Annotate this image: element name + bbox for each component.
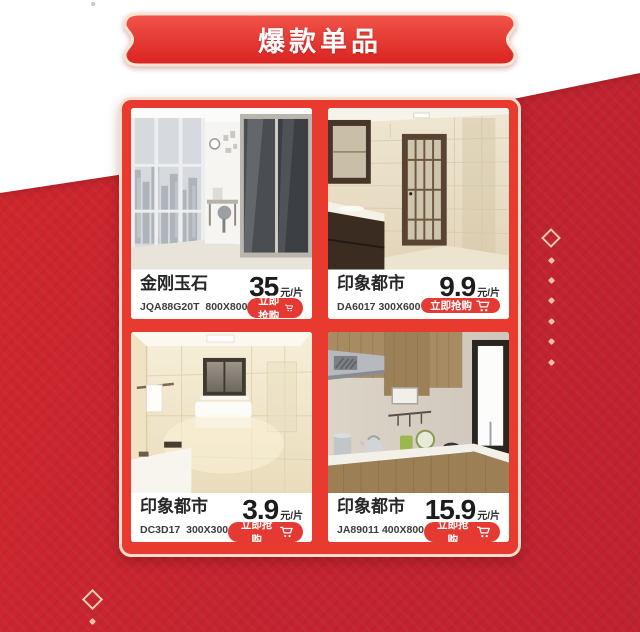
cart-icon	[477, 526, 491, 538]
product-name: 印象都市	[140, 498, 228, 516]
product-info-1: 金刚玉石 JQA88G20T 800X800 35 元/片 立即抢购	[131, 270, 312, 319]
product-price-line: 9.9 元/片	[439, 275, 500, 299]
product-info-2: 印象都市 DA6017 300X600 9.9 元/片 立即抢购	[328, 270, 509, 319]
product-photo-3	[131, 332, 312, 494]
product-price-unit: 元/片	[477, 513, 500, 522]
product-card-3[interactable]: 印象都市 DC3D17 300X300 3.9 元/片 立即抢购	[131, 332, 312, 543]
buy-now-label: 立即抢购	[433, 517, 473, 542]
diamond-dot	[548, 257, 555, 264]
product-price-unit: 元/片	[477, 290, 500, 299]
bathroom-door-photo	[328, 108, 509, 270]
kitchen-photo	[328, 332, 509, 494]
banner-title: 爆款单品	[123, 12, 517, 67]
diamond-dot	[89, 618, 96, 625]
diamond-dot	[548, 297, 555, 304]
product-sku: DA6017 300X600	[337, 301, 420, 313]
diamond-outline-ornament-bottom-left	[82, 589, 103, 610]
product-sku: JA89011 400X800	[337, 524, 424, 536]
product-info-4: 印象都市 JA89011 400X800 15.9 元/片 立即抢购	[328, 493, 509, 542]
gray-dot-decoration	[91, 2, 95, 6]
buy-now-button[interactable]: 立即抢购	[424, 522, 500, 542]
product-sku: JQA88G20T 800X800	[140, 301, 247, 313]
product-name: 金刚玉石	[140, 275, 247, 293]
product-photo-1	[131, 108, 312, 270]
buy-now-button[interactable]: 立即抢购	[228, 522, 303, 542]
promo-page: 爆款单品	[0, 0, 640, 632]
diamond-dot	[548, 318, 555, 325]
diamond-dot	[548, 277, 555, 284]
product-price: 9.9	[439, 275, 475, 299]
cart-icon	[280, 526, 294, 538]
diamond-dot	[548, 359, 555, 366]
product-name: 印象都市	[337, 275, 420, 293]
buy-now-label: 立即抢购	[237, 517, 276, 542]
diamond-outline-ornament-right	[541, 228, 561, 248]
product-card-1[interactable]: 金刚玉石 JQA88G20T 800X800 35 元/片 立即抢购	[131, 108, 312, 319]
product-info-3: 印象都市 DC3D17 300X300 3.9 元/片 立即抢购	[131, 493, 312, 542]
product-photo-4	[328, 332, 509, 494]
buy-now-label: 立即抢购	[430, 298, 472, 313]
balcony-photo	[131, 108, 312, 270]
cart-icon	[476, 300, 491, 312]
products-panel: 金刚玉石 JQA88G20T 800X800 35 元/片 立即抢购	[119, 97, 521, 557]
product-price-unit: 元/片	[280, 513, 303, 522]
bright-bathroom-photo	[131, 332, 312, 494]
product-card-4[interactable]: 印象都市 JA89011 400X800 15.9 元/片 立即抢购	[328, 332, 509, 543]
buy-now-button[interactable]: 立即抢购	[421, 298, 500, 313]
product-name: 印象都市	[337, 498, 424, 516]
product-price-unit: 元/片	[280, 290, 303, 299]
cart-icon	[285, 302, 294, 314]
diamond-dot	[548, 338, 555, 345]
buy-now-label: 立即抢购	[256, 293, 281, 318]
product-photo-2	[328, 108, 509, 270]
buy-now-button[interactable]: 立即抢购	[247, 298, 303, 318]
product-card-2[interactable]: 印象都市 DA6017 300X600 9.9 元/片 立即抢购	[328, 108, 509, 319]
product-sku: DC3D17 300X300	[140, 524, 228, 536]
promo-banner: 爆款单品	[123, 12, 517, 67]
